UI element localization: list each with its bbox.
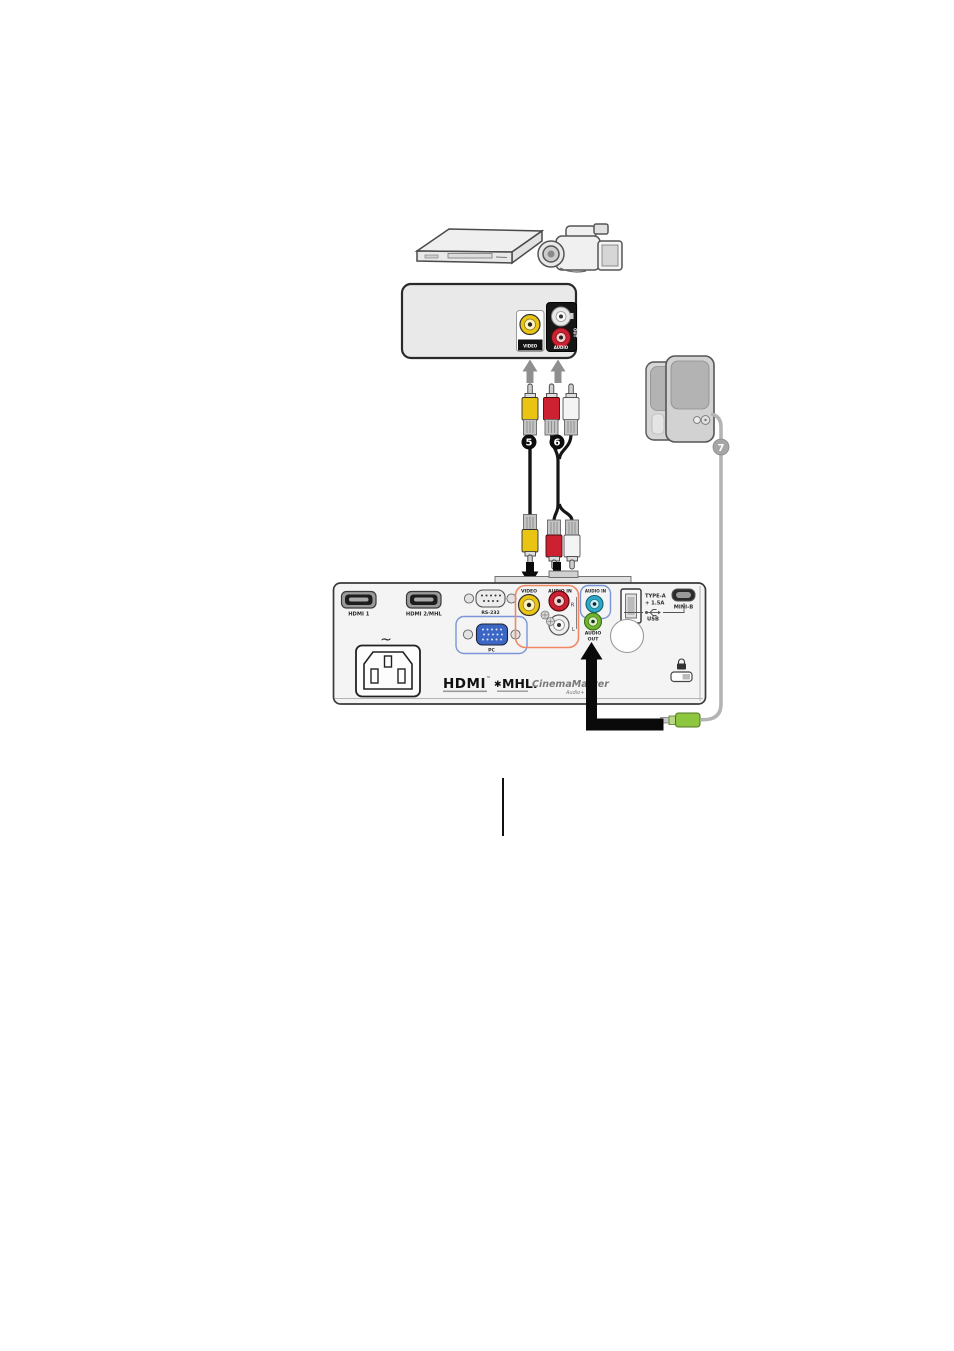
white-top-body xyxy=(563,398,579,421)
camcorder-eyepiece xyxy=(594,224,608,234)
lock-body-icon xyxy=(677,664,686,670)
audio-plus-logo: Audio+ xyxy=(565,690,584,696)
cable6-white-plug-top xyxy=(563,384,579,435)
hdmi2-mhl-port: HDMI 2/MHL xyxy=(406,592,443,618)
rs232-label: RS-232 xyxy=(481,610,499,616)
audio-out-label-line1: AUDIO xyxy=(585,631,602,637)
video-port-label: VIDEO xyxy=(521,589,537,595)
white-bot-body xyxy=(564,535,580,557)
audio-left-label: L xyxy=(572,627,575,633)
speaker-left-lower xyxy=(652,414,664,434)
hdmi-logo: HDMI xyxy=(443,676,486,692)
dvd-buttons xyxy=(496,257,507,258)
cable6-red-plug-bottom xyxy=(546,520,562,569)
dvd-display xyxy=(425,255,438,258)
cable5-top-body xyxy=(522,398,538,421)
cable6-red-plug-top xyxy=(544,384,560,435)
camcorder-lcd-panel xyxy=(602,245,618,266)
av-video-jack: VIDEO xyxy=(517,311,545,352)
composite-video-cable: 5 xyxy=(522,384,539,586)
av-audio-side-label: OUT xyxy=(573,328,578,338)
video-jack-pin xyxy=(527,603,531,607)
usba-label-line2: + 1.5A xyxy=(645,601,664,607)
cable5-plug-top xyxy=(522,384,538,435)
panel-top-notch xyxy=(549,571,578,578)
lock-slot-inner xyxy=(683,674,691,680)
cable5-plug-bottom xyxy=(522,515,538,566)
pc-label: PC xyxy=(488,648,495,654)
av-audio-white-pin xyxy=(559,315,563,319)
hdmi1-slot xyxy=(349,598,369,602)
arrow-up-audio-shaft xyxy=(555,372,562,384)
hdmi2-slot xyxy=(414,598,434,602)
speaker-right xyxy=(666,356,714,442)
ir-receiver xyxy=(611,620,644,653)
minib-label: MINI-B xyxy=(674,605,694,611)
av-source-panel: VIDEO OUT AUDIO xyxy=(402,284,578,383)
av-audio-red-pin xyxy=(559,336,563,340)
speaker-right-grille xyxy=(671,361,709,409)
badge-5-number: 5 xyxy=(526,438,533,449)
av-audio-white-tab xyxy=(570,313,574,319)
arrow-up-video-shaft xyxy=(527,372,534,384)
green-plug-body xyxy=(676,713,701,727)
dvd-player-illustration xyxy=(417,229,542,263)
camcorder-illustration xyxy=(538,224,622,272)
usb-mini-b-port: MINI-B xyxy=(672,589,695,611)
cinemamaster-logo: CinemaMaster xyxy=(532,679,610,690)
audio-in-jack-pin xyxy=(593,602,597,606)
av-video-rca-pin xyxy=(528,322,532,326)
dvd-disc-tray xyxy=(448,254,492,259)
rs232-dsub xyxy=(476,590,505,607)
usb-label: USB xyxy=(647,617,659,623)
audio-rca-cable: 6 xyxy=(544,384,581,586)
speaker-power-knob xyxy=(694,417,701,424)
white-bot-pin xyxy=(570,560,575,569)
cable6-red-wire-bottom xyxy=(554,505,558,521)
hdmi-tm: ™ xyxy=(486,676,491,682)
speakers-illustration xyxy=(646,356,714,442)
audio-in-minijack-label: AUDIO IN xyxy=(585,589,607,594)
hdmi-tagline xyxy=(443,691,487,693)
rs232-screw-left xyxy=(464,594,473,603)
badge-7-number: 7 xyxy=(718,443,725,454)
green-minijack-plug xyxy=(660,713,700,727)
cable5-bot-body xyxy=(522,530,538,553)
arrow-video-shaft xyxy=(526,562,534,573)
cable6-white-wire-bottom xyxy=(559,504,572,521)
av-audio-jack-group: OUT AUDIO xyxy=(547,303,578,352)
speaker-volume-dot xyxy=(704,419,706,421)
audio-out-label-line2: OUT xyxy=(588,637,600,643)
audio-l-jack-pin xyxy=(557,623,561,627)
av-audio-label: AUDIO xyxy=(554,345,569,350)
cable6-white-plug-bottom xyxy=(564,520,580,569)
mhl-tagline xyxy=(497,691,528,692)
pc-screw-left xyxy=(463,630,472,639)
minib-inner xyxy=(676,592,691,598)
av-connect-arrows xyxy=(523,360,566,384)
mhl-star: ✱ xyxy=(494,680,502,690)
arrow-up-audio xyxy=(551,360,566,372)
camcorder-lens-inner xyxy=(548,251,555,258)
red-top-body xyxy=(544,398,560,421)
manual-page: VIDEO OUT AUDIO xyxy=(0,0,954,1351)
audio-right-label: R xyxy=(571,603,575,609)
arrow-up-video xyxy=(523,360,538,372)
divider-line xyxy=(502,778,504,836)
badge-6-number: 6 xyxy=(554,438,561,449)
hdmi2-label: HDMI 2/MHL xyxy=(406,612,443,618)
projector-rear-panel: HDMI 1 HDMI 2/MHL RS-232 xyxy=(334,571,706,704)
hdmi1-label: HDMI 1 xyxy=(348,612,370,618)
audio-out-jack-pin xyxy=(591,620,595,624)
usba-label-line1: TYPE-A xyxy=(645,594,666,600)
connection-diagram: VIDEO OUT AUDIO xyxy=(0,0,954,1351)
audio-r-jack-pin xyxy=(557,599,561,603)
red-bot-body xyxy=(546,535,562,557)
av-video-label: VIDEO xyxy=(523,344,538,349)
